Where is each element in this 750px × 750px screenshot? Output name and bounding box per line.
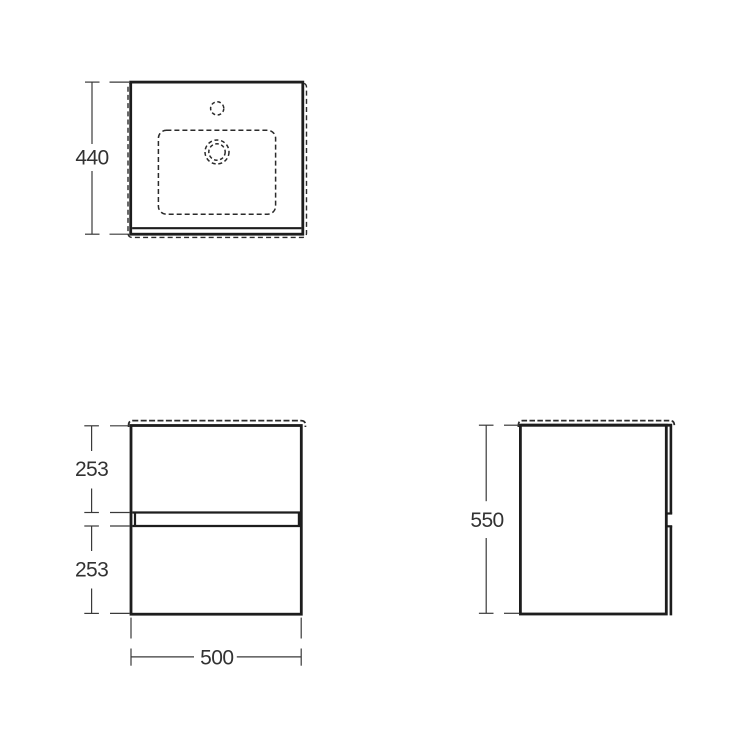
svg-text:253: 253 (75, 559, 108, 582)
svg-text:253: 253 (75, 458, 108, 481)
svg-text:550: 550 (470, 509, 503, 532)
svg-text:440: 440 (75, 147, 108, 170)
svg-text:500: 500 (200, 646, 233, 669)
